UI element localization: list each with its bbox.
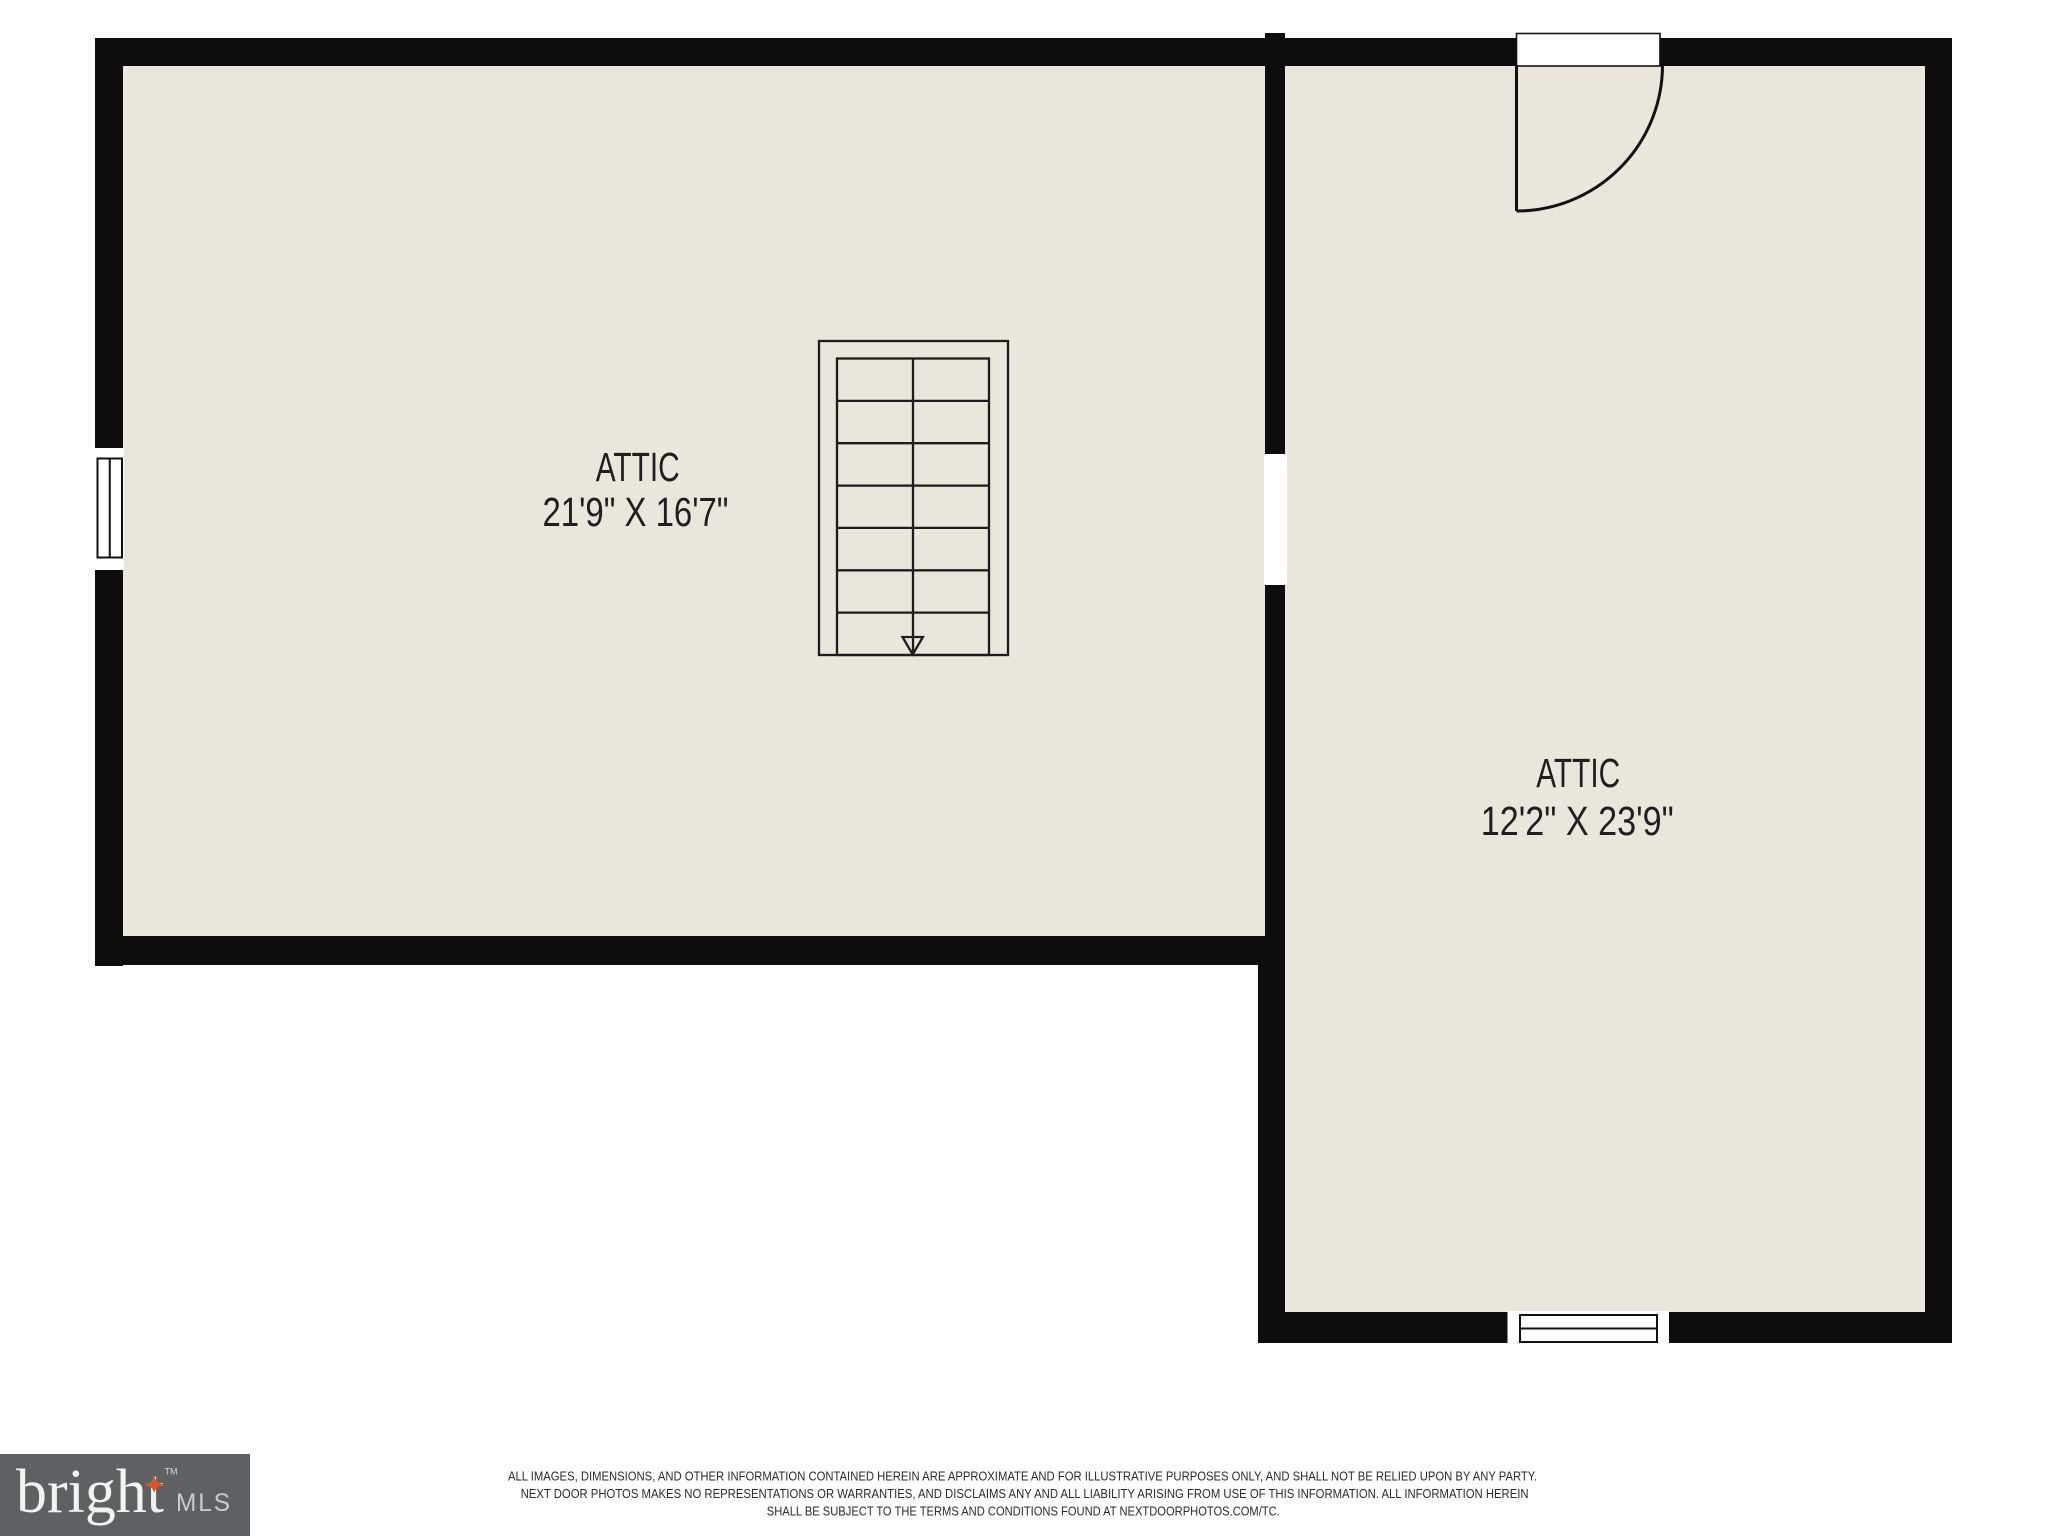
- svg-text:ATTIC: ATTIC: [1536, 750, 1620, 796]
- svg-text:ATTIC: ATTIC: [596, 444, 680, 490]
- svg-text:12'2" X 23'9": 12'2" X 23'9": [1481, 798, 1674, 844]
- svg-text:SHALL BE SUBJECT TO THE TERMS: SHALL BE SUBJECT TO THE TERMS AND CONDIT…: [767, 1504, 1280, 1519]
- svg-text:ALL IMAGES, DIMENSIONS, AND OT: ALL IMAGES, DIMENSIONS, AND OTHER INFORM…: [508, 1468, 1537, 1483]
- svg-text:NEXT DOOR PHOTOS MAKES NO REPR: NEXT DOOR PHOTOS MAKES NO REPRESENTATION…: [521, 1486, 1529, 1501]
- svg-text:bright: bright: [16, 1458, 164, 1526]
- svg-text:MLS: MLS: [176, 1489, 232, 1517]
- svg-text:TM: TM: [165, 1467, 178, 1477]
- svg-text:21'9" X 16'7": 21'9" X 16'7": [543, 489, 729, 535]
